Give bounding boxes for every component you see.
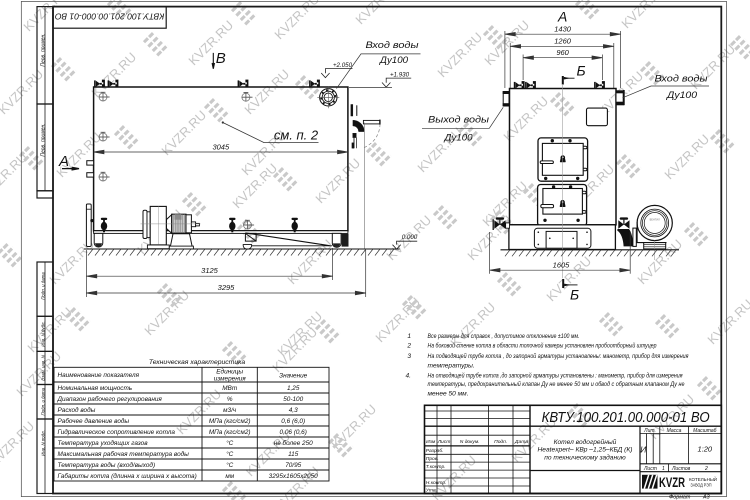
svg-text:3045: 3045 bbox=[212, 142, 230, 151]
svg-text:115: 115 bbox=[288, 451, 299, 458]
svg-text:не более 250: не более 250 bbox=[274, 439, 313, 447]
svg-text:мм: мм bbox=[225, 473, 234, 480]
svg-text:Изм: Изм bbox=[426, 439, 436, 445]
svg-text:°С: °С bbox=[226, 450, 234, 458]
svg-text:На подводящей трубе котла ,: На подводящей трубе котла , до запорной … bbox=[428, 352, 689, 360]
svg-text:Расход воды: Расход воды bbox=[58, 406, 96, 414]
svg-text:см. п. 2: см. п. 2 bbox=[274, 128, 319, 143]
svg-text:измерения: измерения bbox=[214, 376, 247, 383]
svg-text:Номинальная мощность: Номинальная мощность bbox=[58, 385, 133, 392]
svg-text:КОТЕЛЬНЫЙ: КОТЕЛЬНЫЙ bbox=[689, 475, 717, 482]
svg-text:°С: °С bbox=[226, 439, 234, 447]
svg-text:4.: 4. bbox=[406, 372, 412, 379]
svg-text:ВЕНТИЛ: ВЕНТИЛ bbox=[650, 219, 660, 222]
svg-text:Инв. N дубл.: Инв. N дубл. bbox=[41, 321, 46, 346]
svg-text:МПа (кгс/см2): МПа (кгс/см2) bbox=[209, 418, 251, 425]
svg-text:Масштаб: Масштаб bbox=[693, 428, 717, 434]
svg-text:Котел водогрейный: Котел водогрейный bbox=[554, 438, 617, 446]
svg-text:4,3: 4,3 bbox=[289, 407, 298, 414]
svg-text:МПа (кгс/см2): МПа (кгс/см2) bbox=[209, 429, 251, 436]
svg-text:менее 50 мм.: менее 50 мм. bbox=[428, 391, 469, 398]
svg-text:Вход воды: Вход воды bbox=[655, 74, 708, 84]
svg-text:2: 2 bbox=[704, 466, 708, 472]
svg-text:Ду100: Ду100 bbox=[379, 55, 408, 65]
svg-text:Вход воды: Вход воды bbox=[366, 40, 419, 50]
svg-text:70/95: 70/95 bbox=[285, 462, 301, 469]
svg-text:Перв. примен.: Перв. примен. bbox=[41, 123, 47, 156]
svg-text:Подп. и дата: Подп. и дата bbox=[41, 387, 46, 415]
svg-text:В: В bbox=[216, 50, 226, 67]
svg-text:°С: °С bbox=[226, 461, 234, 469]
svg-text:0.000: 0.000 bbox=[402, 234, 418, 241]
svg-text:Диапазон рабочего регулировани: Диапазон рабочего регулирования bbox=[57, 395, 163, 403]
svg-text:2: 2 bbox=[406, 342, 411, 349]
svg-text:Пров.: Пров. bbox=[426, 456, 439, 462]
svg-text:Лист: Лист bbox=[643, 466, 657, 472]
svg-text:Максимальная рабочая температу: Максимальная рабочая температура воды bbox=[58, 450, 190, 458]
svg-text:Выход воды: Выход воды bbox=[428, 115, 489, 125]
svg-text:Масса: Масса bbox=[667, 428, 682, 434]
svg-text:Ду100: Ду100 bbox=[443, 133, 472, 143]
svg-text:Температура уходящих газов: Температура уходящих газов bbox=[58, 439, 149, 447]
svg-text:м3/ч: м3/ч bbox=[223, 407, 237, 414]
svg-text:Все размеры для справок , допу: Все размеры для справок , допустимое отк… bbox=[428, 332, 580, 340]
svg-text:1: 1 bbox=[662, 466, 665, 472]
svg-text:МВт: МВт bbox=[222, 385, 238, 392]
svg-text:Heatexpert– КВр –1,25–КБД (К): Heatexpert– КВр –1,25–КБД (К) bbox=[538, 447, 633, 454]
svg-text:КВТУ.100.201.00.000-01 ВО: КВТУ.100.201.00.000-01 ВО bbox=[542, 410, 710, 426]
svg-text:3: 3 bbox=[407, 353, 411, 360]
svg-text:Б: Б bbox=[570, 287, 579, 303]
svg-text:1: 1 bbox=[407, 333, 411, 340]
svg-text:Формат: Формат bbox=[669, 494, 691, 500]
svg-text:Лит.: Лит. bbox=[643, 428, 656, 434]
svg-text:960: 960 bbox=[556, 48, 569, 57]
svg-text:+2.050: +2.050 bbox=[333, 62, 353, 69]
svg-text:1,25: 1,25 bbox=[287, 385, 300, 392]
svg-text:На отводящей трубе котла ,до з: На отводящей трубе котла ,до запорной ар… bbox=[428, 371, 683, 379]
svg-text:Габариты котла (длинна х ширин: Габариты котла (длинна х ширина х высота… bbox=[58, 472, 197, 480]
svg-text:0,6 (6,0): 0,6 (6,0) bbox=[281, 418, 305, 425]
svg-text:А: А bbox=[58, 153, 69, 170]
svg-text:И: И bbox=[640, 445, 647, 455]
svg-text:Листов: Листов bbox=[671, 466, 691, 472]
svg-text:А3: А3 bbox=[702, 494, 710, 500]
svg-text:3295х1605х2050: 3295х1605х2050 bbox=[269, 473, 318, 480]
svg-text:по техническому заданию: по техническому заданию bbox=[544, 453, 626, 461]
svg-text:Значение: Значение bbox=[279, 372, 307, 379]
svg-text:Инв. N подл.: Инв. N подл. bbox=[41, 430, 46, 456]
svg-text:1430: 1430 bbox=[554, 24, 572, 33]
svg-text:Подп. и дата: Подп. и дата bbox=[41, 272, 46, 300]
svg-text:Перв. примен.: Перв. примен. bbox=[41, 33, 47, 66]
svg-text:А: А bbox=[557, 9, 567, 25]
svg-text:температуры, предохранительный: температуры, предохранительный клапан Ду… bbox=[428, 380, 685, 388]
svg-text:Б: Б bbox=[577, 63, 586, 79]
svg-text:1260: 1260 bbox=[554, 37, 572, 46]
svg-text:3125: 3125 bbox=[201, 266, 219, 275]
svg-text:На боковой стенке котла в обла: На боковой стенке котла в области топочн… bbox=[428, 341, 657, 349]
svg-text:50-100: 50-100 bbox=[283, 396, 303, 403]
svg-text:Единицы: Единицы bbox=[216, 368, 243, 376]
svg-text:Взам. инв. N: Взам. инв. N bbox=[41, 354, 46, 380]
svg-text:Наименование показателя: Наименование показателя bbox=[58, 372, 140, 379]
svg-text:KVZR: KVZR bbox=[659, 475, 685, 490]
svg-text:Гидравлическое сопротивление к: Гидравлическое сопротивление котла bbox=[58, 428, 176, 436]
svg-text:Температура воды (вход/выход): Температура воды (вход/выход) bbox=[58, 461, 156, 469]
svg-text:1:20: 1:20 bbox=[697, 445, 712, 454]
svg-text:Разраб.: Разраб. bbox=[426, 448, 444, 454]
svg-text:Подп.: Подп. bbox=[494, 439, 507, 445]
svg-text:+1.930: +1.930 bbox=[390, 72, 410, 79]
svg-text:%: % bbox=[227, 396, 233, 403]
svg-text:Ду100: Ду100 bbox=[666, 90, 697, 100]
svg-text:0,06 (0,6): 0,06 (0,6) bbox=[280, 429, 307, 436]
svg-text:температуры.: температуры. bbox=[428, 363, 475, 370]
svg-text:Дата: Дата bbox=[514, 439, 528, 445]
svg-text:3295: 3295 bbox=[218, 283, 236, 292]
svg-text:КВТУ.100.201.00.000-01 ВО: КВТУ.100.201.00.000-01 ВО bbox=[55, 12, 165, 22]
svg-text:N докум.: N докум. bbox=[460, 439, 480, 445]
svg-text:Утв.: Утв. bbox=[426, 487, 437, 493]
svg-text:1605: 1605 bbox=[553, 260, 571, 269]
svg-text:Н.контр.: Н.контр. bbox=[426, 480, 447, 486]
svg-text:Лист: Лист bbox=[437, 439, 451, 445]
svg-text:Рабочее давление воды: Рабочее давление воды bbox=[58, 417, 130, 425]
svg-text:Техническая характеристика: Техническая характеристика bbox=[149, 359, 245, 366]
svg-text:Т.контр.: Т.контр. bbox=[426, 464, 446, 470]
svg-text:ЗАВОД РЭП: ЗАВОД РЭП bbox=[691, 483, 712, 488]
